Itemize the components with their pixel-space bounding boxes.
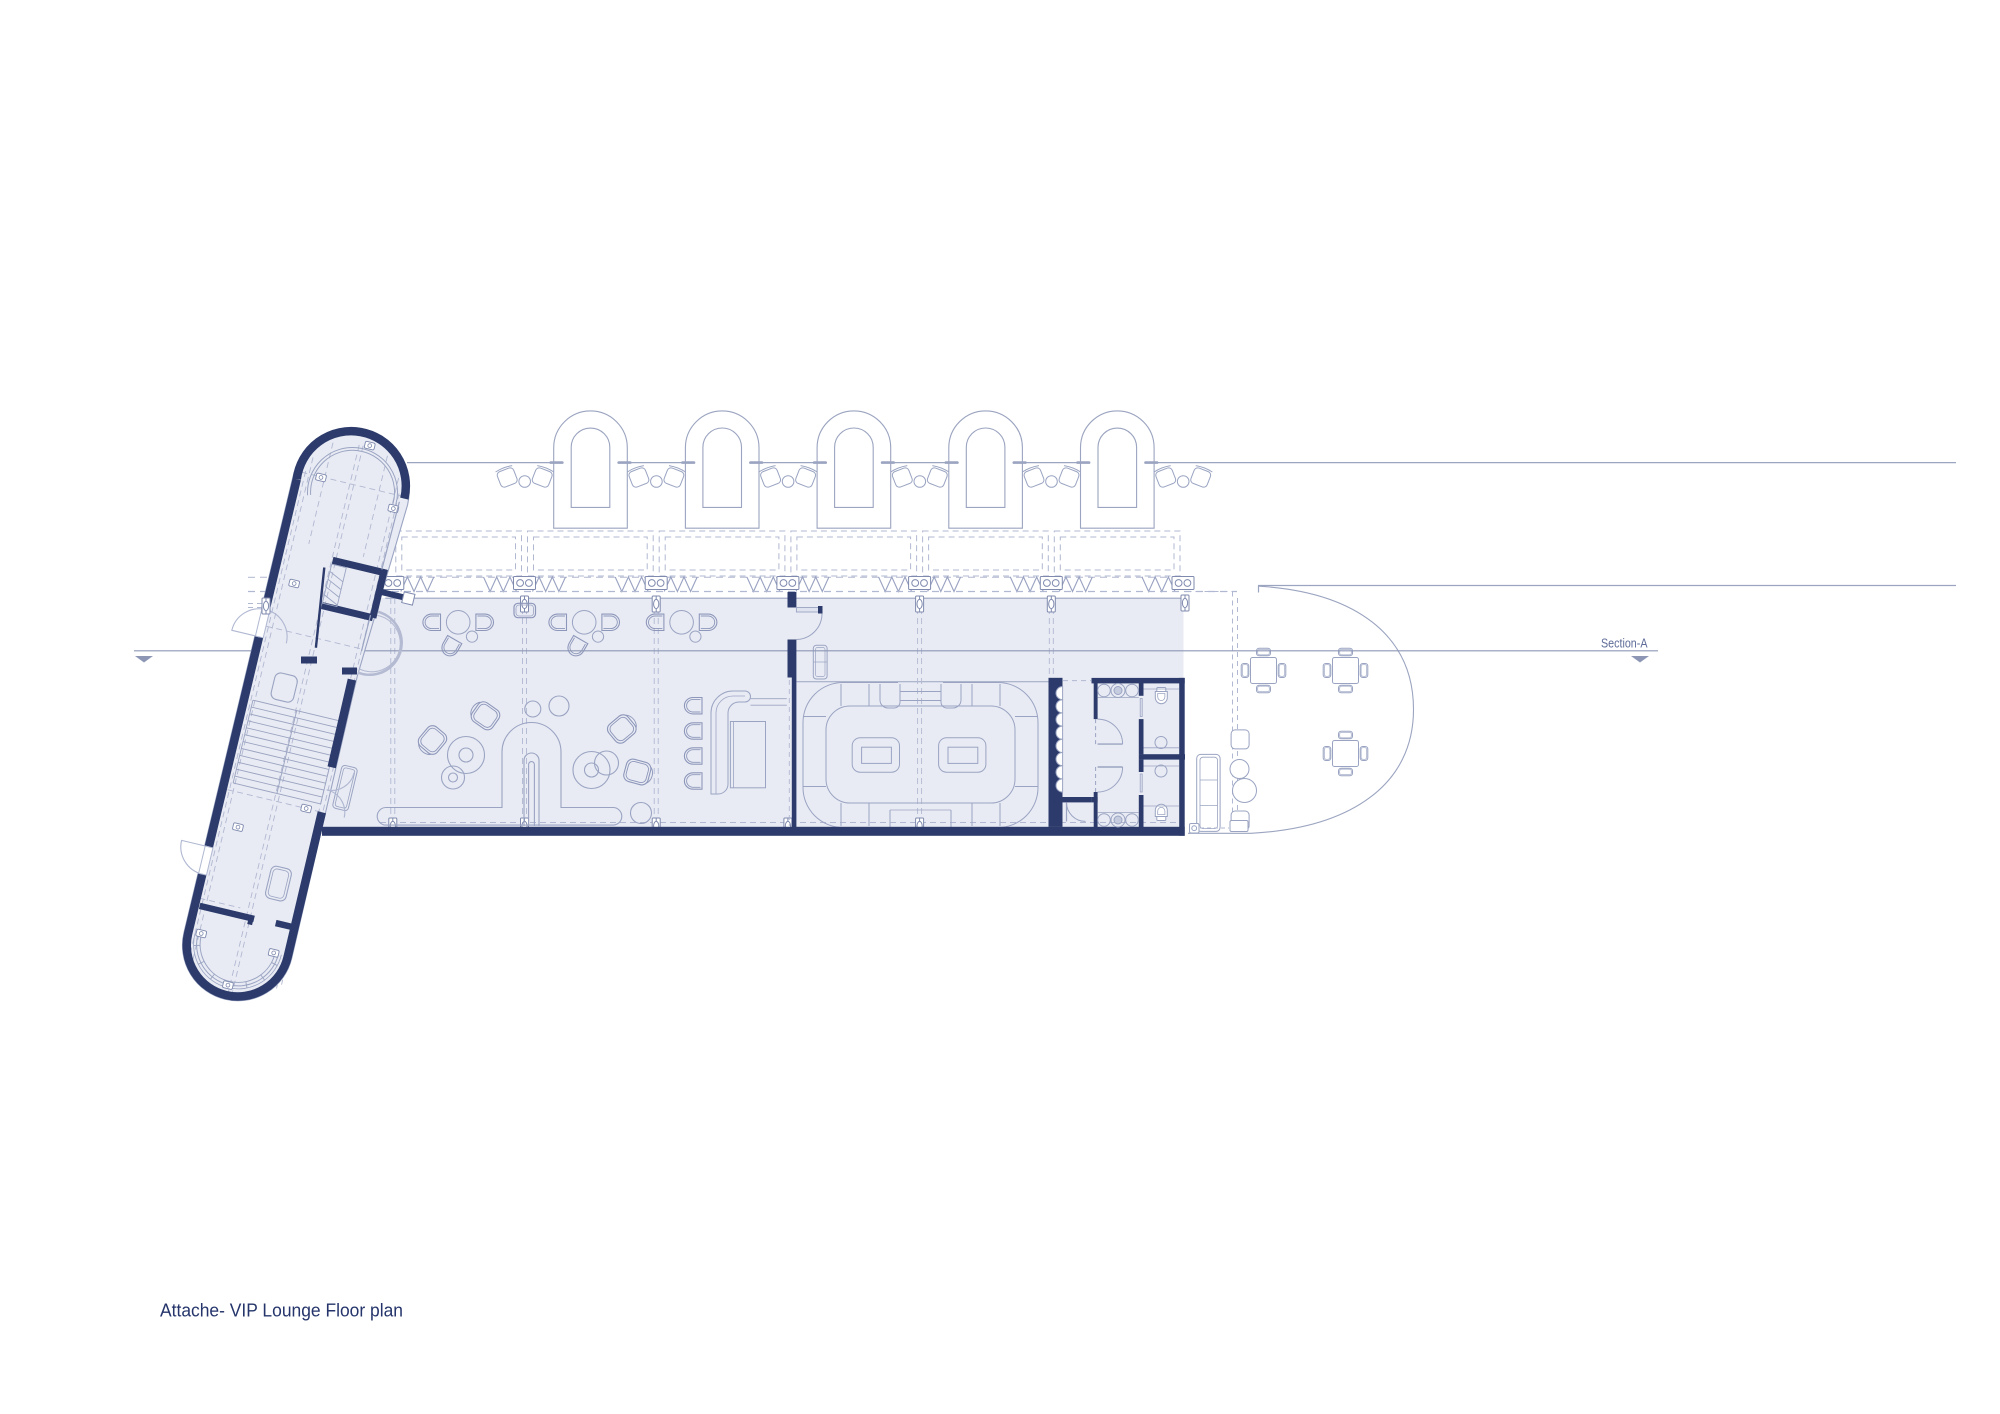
svg-text:Section-A: Section-A [1601, 636, 1648, 651]
svg-text:Attache- VIP Lounge Floor plan: Attache- VIP Lounge Floor plan [160, 1300, 403, 1321]
